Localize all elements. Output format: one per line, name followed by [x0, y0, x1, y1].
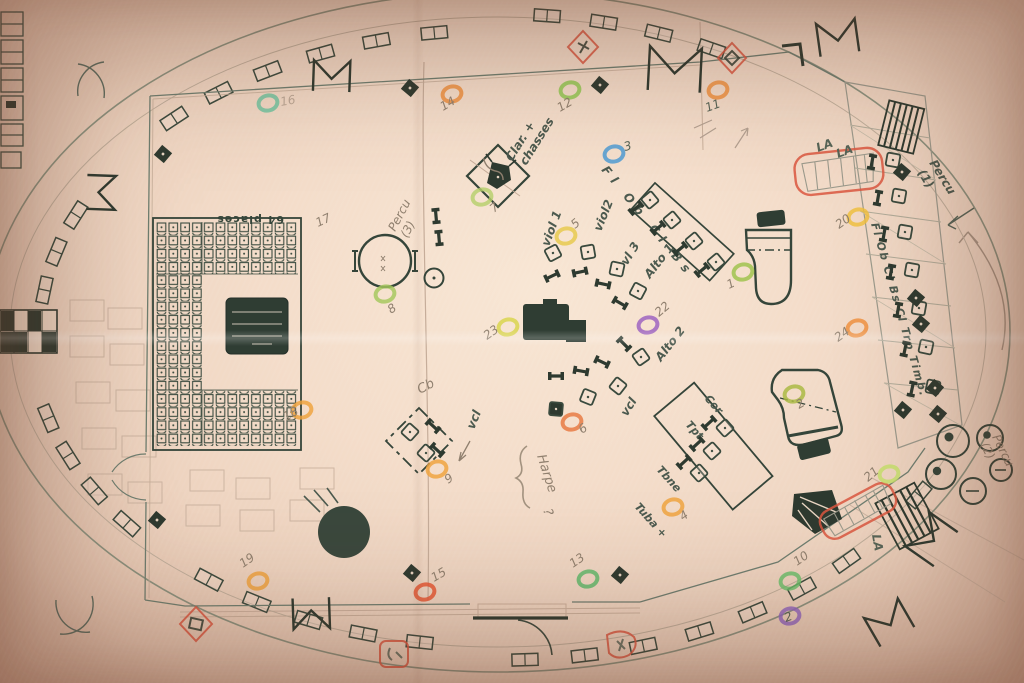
chair — [580, 389, 597, 406]
grand-piano-1 — [746, 210, 791, 304]
marker-number: 19 — [237, 550, 258, 570]
marker-number: 6 — [576, 420, 591, 436]
perimeter-seat — [363, 33, 391, 49]
position-marker-2: 2 — [779, 606, 801, 625]
marker-ring — [559, 80, 581, 99]
red-diamond-marker — [568, 31, 598, 63]
perimeter-seat — [590, 14, 618, 30]
chair — [609, 261, 624, 276]
dark-marker-square — [894, 401, 912, 419]
dark-marker-square — [148, 511, 166, 529]
door-arc-outer-bottomleft — [56, 596, 93, 634]
music-stand — [675, 454, 692, 471]
shaded-circle — [304, 488, 370, 558]
marker-ring — [374, 284, 396, 303]
marker-ring — [732, 262, 754, 281]
music-stand — [548, 372, 564, 380]
legend-grid — [0, 310, 57, 353]
lobby-table-sketch — [70, 300, 104, 321]
lobby-table-sketch — [110, 344, 144, 365]
lobby-table-sketch — [108, 308, 142, 329]
position-marker-2: 2 — [783, 384, 807, 411]
chair — [580, 244, 595, 259]
lobby-table-sketch — [300, 468, 334, 489]
position-marker-19: 19 — [237, 550, 269, 590]
dark-marker-square — [611, 566, 629, 584]
perimeter-seat — [242, 592, 271, 613]
chair — [632, 348, 650, 366]
chair — [904, 262, 919, 277]
double-door-symbol — [816, 19, 859, 57]
stairs-top — [878, 100, 924, 153]
violin2-label: viol2 — [591, 198, 616, 234]
lobby-table-sketch — [122, 436, 156, 457]
chair — [891, 188, 906, 203]
lobby-table-sketch — [70, 336, 104, 357]
position-marker-24: 24 — [832, 318, 868, 344]
perimeter-seat — [306, 44, 334, 63]
stage-plan-photo: 64 places — [0, 0, 1024, 683]
marker-number: 16 — [279, 92, 297, 109]
music-stand — [611, 296, 629, 311]
percussion-3-group — [352, 235, 444, 288]
perimeter-seat — [421, 26, 448, 40]
marker-number: 7 — [487, 199, 502, 215]
lobby-table-sketch — [76, 382, 110, 403]
marker-ring — [257, 93, 279, 112]
position-marker-21: 21 — [861, 464, 900, 485]
piano-glyph — [487, 162, 511, 189]
perimeter-seat — [195, 568, 224, 591]
position-marker-23: 23 — [481, 317, 519, 342]
cello-label-b: vcl — [464, 407, 484, 431]
marker-ring — [603, 144, 625, 163]
perimeter-seat — [64, 201, 88, 229]
music-stand — [431, 208, 440, 225]
marker-ring — [637, 315, 659, 334]
position-marker-14: 14 — [438, 84, 464, 113]
position-marker-20: 20 — [833, 207, 869, 231]
cello-label-a: vcl — [618, 394, 640, 418]
chair — [885, 152, 900, 167]
dark-marker-square — [929, 405, 947, 423]
position-marker-4: 4 — [662, 497, 691, 523]
marker-number: 15 — [429, 565, 449, 585]
chair — [629, 282, 647, 300]
music-stand — [873, 189, 884, 206]
lobby-table-sketch — [186, 505, 220, 526]
la-note-3: LA — [869, 533, 886, 552]
stage-plan-drawing: 64 places — [0, 0, 1024, 683]
position-marker-16: 16 — [257, 92, 297, 112]
double-door-symbols — [86, 19, 957, 647]
position-marker-17: 17 — [313, 210, 333, 229]
dark-marker-square — [401, 79, 419, 97]
perimeter-seat — [685, 622, 713, 641]
perimeter-seat — [113, 511, 140, 537]
perimeter-seat — [36, 276, 53, 304]
chair — [897, 224, 912, 239]
marker-number: 22 — [652, 299, 673, 320]
door-arc-outer-topleft — [78, 62, 105, 98]
door-arc-left — [112, 454, 146, 500]
marker-number: 4 — [677, 508, 691, 524]
double-door-symbol — [864, 599, 914, 647]
position-marker-22: 22 — [637, 299, 673, 335]
dark-marker-square — [591, 76, 609, 94]
lobby-table-sketch — [236, 478, 270, 499]
music-stand — [594, 278, 611, 289]
contrabass-label: Cb — [415, 376, 437, 397]
marker-ring — [414, 582, 436, 601]
corner-wall — [782, 44, 803, 66]
chair — [549, 402, 563, 416]
music-stand — [593, 355, 611, 369]
pencil-scribble — [694, 120, 748, 148]
marimba-bottom — [816, 479, 901, 543]
lobby-table-sketch — [116, 390, 150, 411]
cello-arrow — [459, 441, 470, 461]
double-door-symbol — [648, 46, 702, 93]
perimeter-seat — [406, 635, 433, 650]
position-marker-6: 6 — [561, 412, 590, 436]
music-stand — [571, 266, 588, 277]
music-stand — [616, 336, 633, 353]
la-note-2: LA — [834, 142, 855, 161]
music-stand — [867, 153, 878, 170]
console-block — [226, 298, 288, 354]
double-door-symbol — [86, 175, 116, 210]
position-marker-3: 3 — [603, 138, 633, 163]
perimeter-seat — [512, 653, 538, 666]
left-wing-boxes — [1, 12, 23, 168]
marker-ring — [247, 571, 269, 590]
choir-seat-block: 64 places — [153, 213, 301, 450]
marker-number: 17 — [313, 210, 333, 229]
perimeter-seat — [160, 106, 188, 130]
piano-bench — [797, 437, 832, 460]
perimeter-seat — [56, 441, 80, 469]
music-stand — [543, 269, 561, 283]
position-marker-13: 13 — [567, 550, 599, 588]
chair — [703, 442, 721, 460]
marker-number: 14 — [438, 94, 458, 114]
position-marker-11: 11 — [703, 80, 729, 115]
music-stand — [434, 230, 443, 247]
dark-marker-square — [912, 315, 930, 333]
marker-number: 8 — [385, 300, 400, 316]
perimeter-seat — [571, 648, 598, 663]
lobby-table-sketch — [82, 428, 116, 449]
perimeter-seat — [534, 9, 561, 23]
marker-number: 13 — [567, 550, 588, 570]
harp-label: Harpe — [533, 453, 559, 495]
position-marker-1: 1 — [724, 262, 754, 291]
position-marker-7: 7 — [471, 187, 502, 215]
position-marker-9: 9 — [426, 459, 456, 486]
percussion1-arrow — [948, 208, 974, 229]
perimeter-seat — [645, 24, 673, 42]
chair — [401, 423, 419, 441]
chair — [716, 419, 734, 437]
harp-brace — [516, 446, 530, 508]
marker-ring — [577, 569, 599, 588]
door-arc-bottom — [518, 620, 552, 655]
conductor-podium — [523, 299, 586, 342]
marker-number: 9 — [442, 471, 456, 487]
lobby-table-sketch — [240, 510, 274, 531]
harp-question: ? — [539, 507, 555, 518]
dark-marker-square — [403, 564, 421, 582]
position-marker-12: 12 — [555, 80, 582, 114]
grand-piano-2 — [772, 370, 842, 461]
perimeter-seat — [46, 237, 67, 266]
perimeter-seat — [253, 61, 282, 82]
seat-block-label: 64 places — [216, 213, 284, 226]
chair — [918, 339, 933, 354]
dark-marker-square — [154, 145, 172, 163]
perimeter-seat — [38, 404, 59, 433]
music-stand — [693, 262, 710, 278]
perimeter-seat — [349, 625, 377, 642]
chair — [609, 377, 627, 395]
music-stand — [572, 366, 589, 377]
lobby-table-sketch — [190, 470, 224, 491]
marker-ring — [707, 80, 729, 99]
chair — [690, 464, 708, 482]
position-marker-15: 15 — [414, 565, 449, 602]
piano-bench — [756, 210, 785, 228]
position-marker-8: 8 — [374, 284, 399, 316]
